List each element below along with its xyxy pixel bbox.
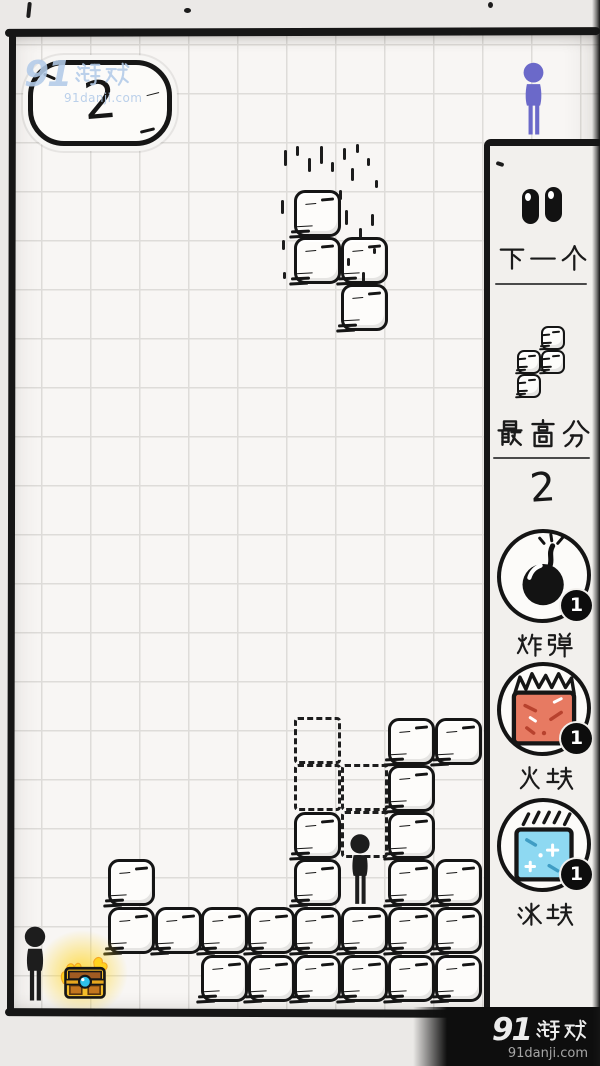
motion-dash <box>367 158 370 166</box>
motion-dash <box>284 150 287 166</box>
cjk-glyph <box>516 632 543 659</box>
preview-block <box>517 350 541 374</box>
next-piece-label <box>485 244 600 272</box>
motion-dash <box>345 210 348 225</box>
eye-right <box>545 187 562 222</box>
watermark-logo: 91 <box>492 1012 588 1048</box>
cjk-glyph <box>104 61 131 88</box>
motion-dash <box>339 190 342 200</box>
watermark-top: 91 91danji.com <box>24 54 142 105</box>
ice-label <box>497 901 591 928</box>
cjk-glyph <box>529 244 557 272</box>
best-score-label <box>485 419 600 449</box>
stickman-left <box>18 924 52 1004</box>
motion-dash <box>282 240 285 250</box>
watermark-site: 91danji.com <box>64 91 142 105</box>
cjk-glyph <box>546 901 573 928</box>
cjk-glyph <box>536 1018 561 1043</box>
motion-dash <box>351 168 354 181</box>
eyes-icon[interactable] <box>522 187 584 227</box>
cjk-glyph <box>516 901 543 928</box>
bomb-label <box>497 632 591 659</box>
best-score-value: 2 <box>484 461 600 515</box>
item-ice-button[interactable]: 1 <box>497 798 591 928</box>
ice-block-icon[interactable]: 1 <box>497 798 591 892</box>
fire-label <box>497 765 591 792</box>
preview-block <box>541 350 565 374</box>
ink-mark <box>488 2 493 8</box>
motion-dash <box>371 214 374 226</box>
motion-dash <box>359 228 362 238</box>
preview-block <box>517 374 541 398</box>
item-bomb-button[interactable]: 1 <box>497 529 591 659</box>
divider <box>495 283 587 285</box>
ink-mark <box>184 8 191 13</box>
motion-dash <box>296 146 299 156</box>
cjk-glyph <box>528 419 558 449</box>
cjk-glyph <box>495 419 525 449</box>
watermark-logo: 91 <box>24 54 131 95</box>
motion-dash <box>362 272 365 282</box>
cjk-glyph <box>546 765 573 792</box>
motion-dash <box>308 158 311 172</box>
game-screen: 2 91 91danji.com 下一个 最高分 2 <box>0 0 600 1066</box>
motion-dash <box>375 180 378 188</box>
motion-dash <box>331 162 334 172</box>
fire-block-icon[interactable]: 1 <box>497 662 591 756</box>
motion-dash <box>373 248 376 254</box>
cjk-glyph <box>498 244 526 272</box>
cjk-glyph <box>546 632 573 659</box>
cjk-glyph <box>75 61 102 88</box>
screen-edge-shade <box>592 0 600 1066</box>
treasure-chest-icon <box>58 951 112 1005</box>
cjk-glyph <box>516 765 543 792</box>
preview-block <box>541 326 565 350</box>
fire-count-badge: 1 <box>561 723 592 754</box>
watermark-site: 91danji.com <box>492 1046 588 1061</box>
cjk-glyph <box>560 244 588 272</box>
motion-dash <box>281 200 284 214</box>
divider <box>493 457 590 459</box>
eye-left <box>522 189 539 224</box>
bomb-icon[interactable]: 1 <box>497 529 591 623</box>
stickman-top-right <box>517 57 550 141</box>
next-piece-preview <box>517 326 589 398</box>
cjk-glyph <box>563 1018 588 1043</box>
cjk-glyph <box>561 419 591 449</box>
stickman-middle <box>344 831 376 908</box>
watermark-bottom: 91 91danji.com <box>492 1012 588 1061</box>
motion-dash <box>347 258 350 266</box>
motion-dash <box>343 148 346 160</box>
bomb-count-badge: 1 <box>561 590 592 621</box>
motion-dash <box>356 144 359 153</box>
ice-count-badge: 1 <box>561 859 592 890</box>
item-fire-button[interactable]: 1 <box>497 662 591 792</box>
motion-dash <box>283 272 286 279</box>
motion-dash <box>320 146 323 164</box>
